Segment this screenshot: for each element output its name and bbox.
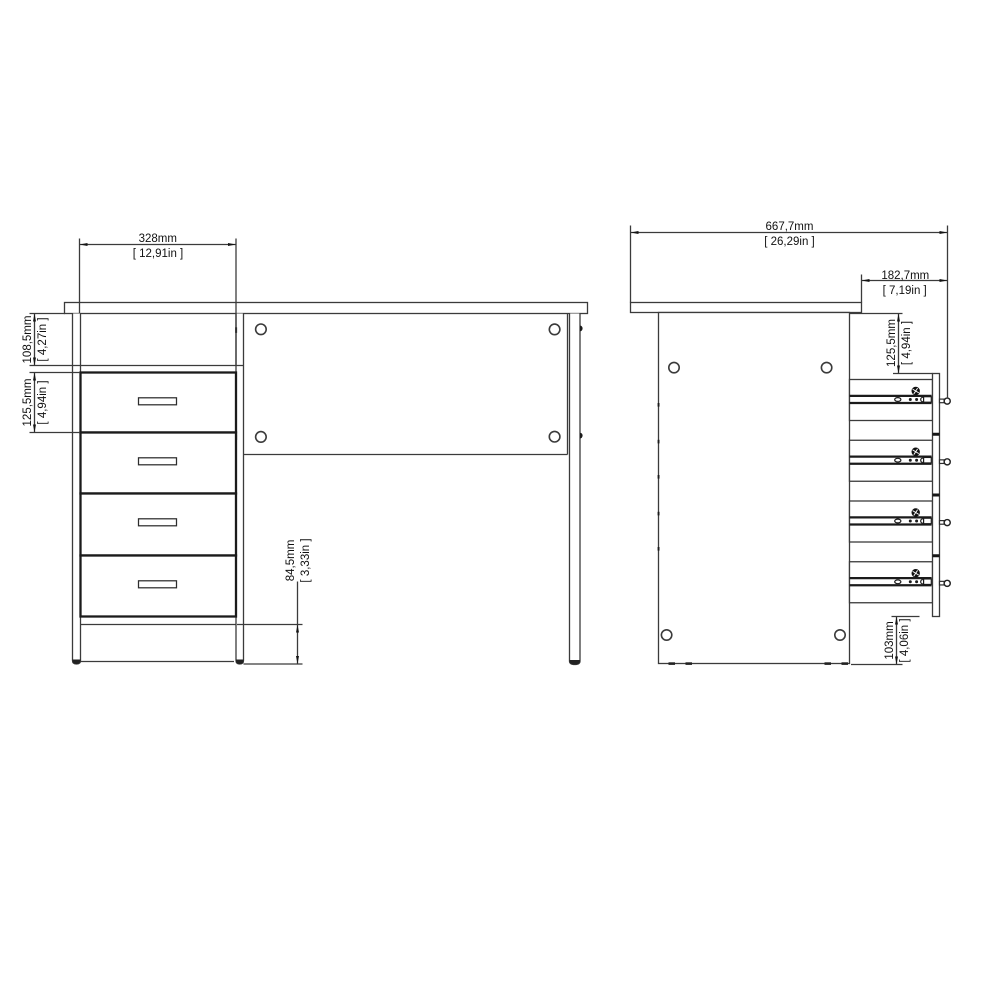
svg-text:667,7mm: 667,7mm xyxy=(766,221,814,233)
svg-text:[ 4,94in ]: [ 4,94in ] xyxy=(901,321,913,365)
svg-text:125,5mm: 125,5mm xyxy=(886,319,898,367)
svg-text:328mm: 328mm xyxy=(139,233,177,245)
svg-text:[ 4,27in ]: [ 4,27in ] xyxy=(37,317,49,361)
svg-text:108,5mm: 108,5mm xyxy=(22,316,34,364)
svg-text:84,5mm: 84,5mm xyxy=(285,540,297,582)
svg-text:[ 12,91in ]: [ 12,91in ] xyxy=(133,248,184,260)
svg-text:[ 4,06in ]: [ 4,06in ] xyxy=(899,618,911,662)
svg-text:[ 4,94in ]: [ 4,94in ] xyxy=(37,380,49,424)
svg-text:[ 26,29in ]: [ 26,29in ] xyxy=(764,236,815,248)
svg-text:103mm: 103mm xyxy=(884,621,896,659)
svg-text:182,7mm: 182,7mm xyxy=(881,270,929,282)
svg-text:[ 3,33in ]: [ 3,33in ] xyxy=(300,538,312,582)
svg-text:125,5mm: 125,5mm xyxy=(22,379,34,427)
svg-text:[ 7,19in ]: [ 7,19in ] xyxy=(883,285,927,297)
